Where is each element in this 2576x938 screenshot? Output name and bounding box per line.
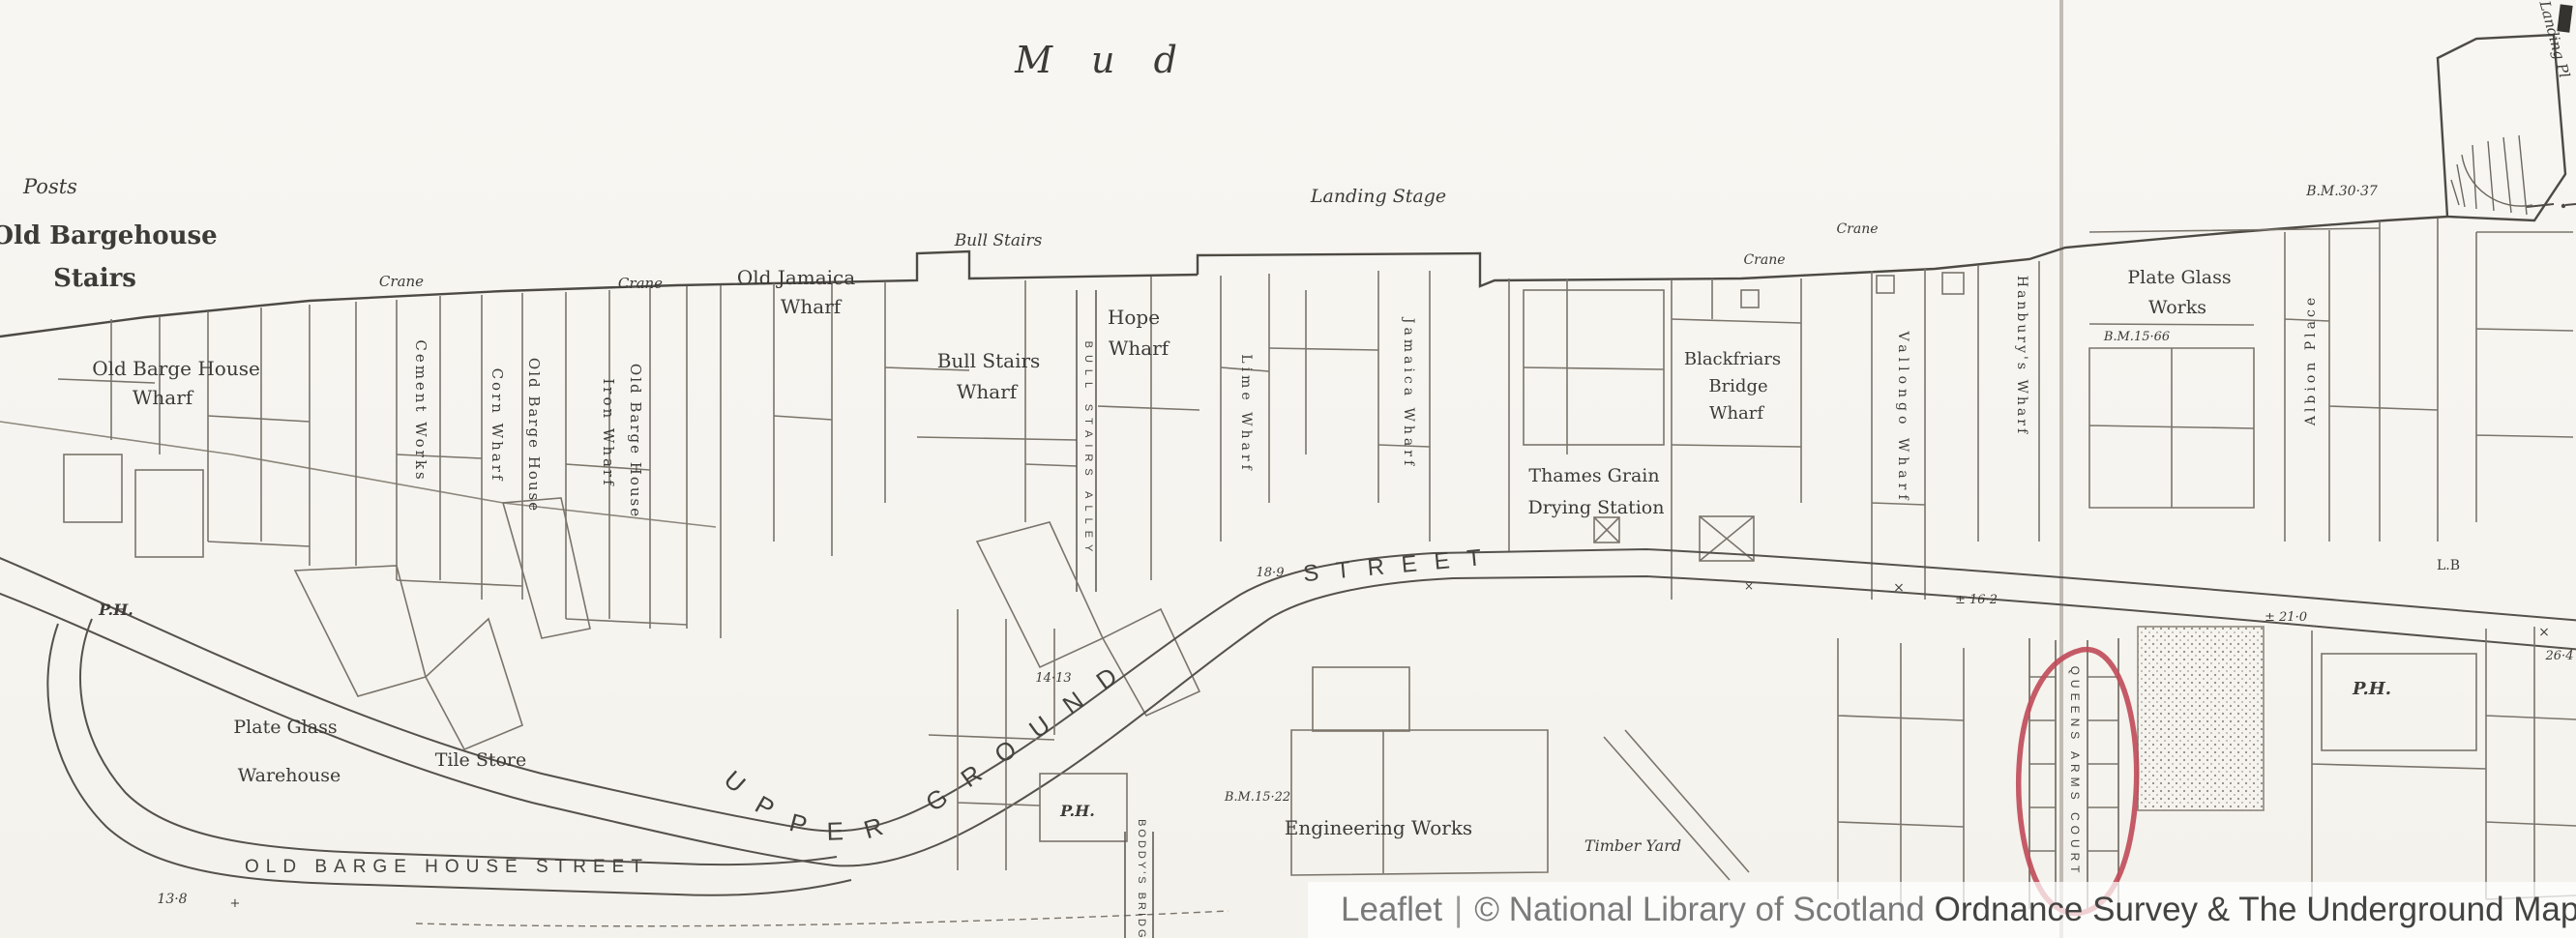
attribution-bar: Leaflet | © National Library of Scotland… [1308, 882, 2576, 938]
map-label: Thames Grain [1528, 465, 1659, 486]
map-label: Crane [379, 273, 424, 290]
map-label: Crane [1743, 252, 1785, 268]
map-label: Engineering Works [1285, 816, 1472, 839]
river-stairs-hatch [2451, 135, 2565, 215]
map-label: Old Bargehouse [0, 221, 218, 250]
map-label: 13·8 [157, 892, 187, 907]
street-old-barge-house [47, 619, 1229, 926]
map-label: ± 16·2 [1955, 593, 1998, 607]
map-label: × [2538, 625, 2550, 640]
map-label: L.B [2437, 558, 2460, 573]
map-label: Old Jamaica [737, 266, 855, 289]
leaflet-logo-icon [1321, 896, 1332, 923]
map-label: Bull Stairs [937, 349, 1041, 372]
map-label: Jamaica Wharf [1401, 316, 1416, 469]
map-label: 14·13 [1035, 671, 1071, 686]
map-label: Landing Stage [1310, 186, 1446, 207]
map-label: P.H. [1059, 802, 1095, 820]
attribution-separator: | [1454, 891, 1463, 929]
map-label: Cement Works [412, 339, 429, 482]
map-label: Albion Place [2303, 294, 2319, 426]
map-label: BULL STAIRS ALLEY [1082, 341, 1094, 559]
map-label: Timber Yard [1584, 836, 1681, 855]
leaflet-map-viewport[interactable]: M u dPostsOld BargehouseStairsOld Barge … [0, 0, 2576, 938]
shoreline [0, 35, 2576, 337]
map-label: Plate Glass [233, 717, 337, 738]
map-label: Old Barge House [627, 364, 644, 518]
map-label: × [1893, 580, 1905, 596]
map-label: BODDY'S BRIDGE [1136, 819, 1147, 938]
map-label: Vallongo Wharf [1895, 330, 1910, 504]
map-label: OLD BARGE HOUSE STREET [245, 857, 649, 877]
map-label: Wharf [957, 380, 1019, 403]
map-label: Bull Stairs [954, 231, 1043, 250]
nls-credit-link[interactable]: © National Library of Scotland [1474, 891, 1924, 929]
map-label: Wharf [1109, 337, 1170, 360]
leaflet-link[interactable]: Leaflet [1341, 891, 1442, 929]
map-label: Crane [618, 275, 663, 292]
map-label: M u d [1014, 39, 1191, 81]
map-label: Hope [1108, 306, 1160, 329]
map-label: 26·4 [2545, 649, 2574, 663]
map-label: Drying Station [1528, 497, 1665, 518]
map-label: Corn Wharf [489, 368, 506, 484]
map-label: × [1744, 579, 1754, 593]
map-label: P.H. [98, 601, 133, 619]
map-label: Iron Wharf [600, 378, 617, 487]
map-label: Blackfriars [1684, 349, 1781, 369]
map-label: B.M.15·22 [1224, 790, 1290, 805]
map-label: B.M.15·66 [2103, 330, 2170, 344]
map-label: Lime Wharf [1238, 354, 1254, 473]
map-label: Crane [1836, 221, 1878, 237]
map-label: ± 21·0 [2265, 610, 2307, 625]
map-label: QUEENS ARMS COURT [2068, 666, 2082, 878]
map-label: B.M.30·37 [2305, 184, 2378, 199]
map-canvas[interactable]: M u dPostsOld BargehouseStairsOld Barge … [0, 0, 2576, 938]
map-label: Wharf [133, 386, 194, 409]
map-label: Stairs [53, 264, 136, 293]
map-label: Plate Glass [2127, 267, 2231, 288]
map-label: 18·9 [1257, 566, 1285, 580]
map-label: + [230, 896, 241, 911]
map-label: P.H. [2352, 679, 2391, 699]
map-label: Wharf [781, 295, 843, 318]
map-label: Bridge [1708, 376, 1767, 396]
map-label: STREET [1302, 543, 1499, 588]
map-label: Warehouse [238, 765, 341, 786]
map-label: Wharf [1709, 403, 1764, 424]
map-label: Hanbury's Wharf [2014, 276, 2029, 436]
map-label: Posts [22, 175, 77, 198]
os-underground-credit-link[interactable]: Ordnance Survey & The Underground Map [1935, 891, 2576, 929]
map-label: Old Barge House [92, 357, 260, 380]
map-label: Tile Store [435, 749, 527, 771]
map-label: Old Barge House [525, 358, 543, 513]
map-label: Works [2148, 297, 2206, 318]
